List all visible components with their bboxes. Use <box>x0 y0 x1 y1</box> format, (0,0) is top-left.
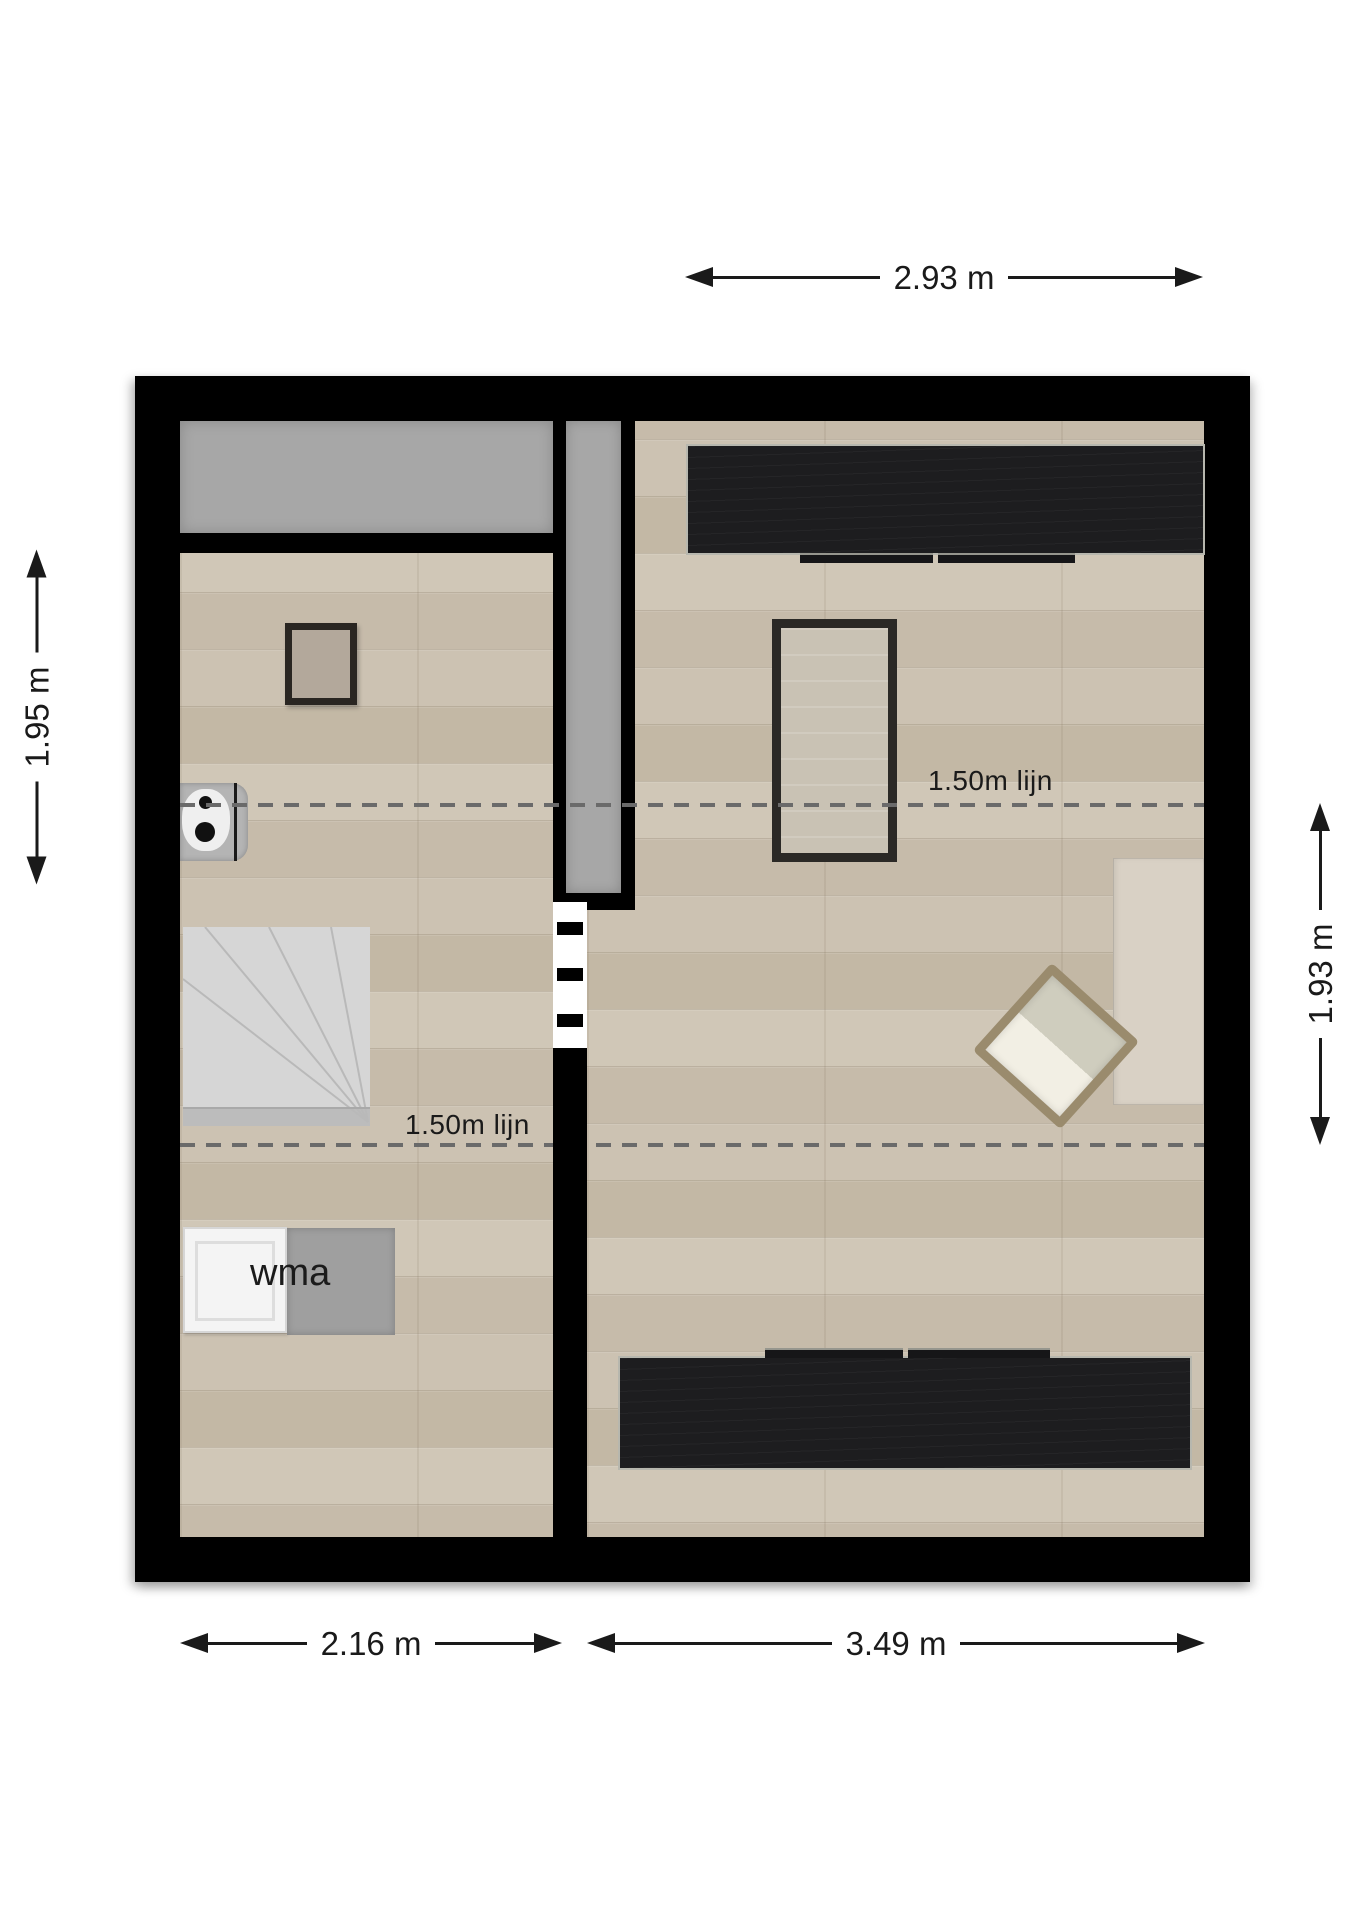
dimension-bottom-left: 2.16 m <box>180 1622 562 1664</box>
dimension-line <box>208 1642 307 1645</box>
toilet <box>180 783 248 861</box>
dimension-line <box>35 577 38 652</box>
dimension-bottom-right-label: 3.49 m <box>846 1627 947 1660</box>
dimension-line <box>1008 276 1175 279</box>
arrow-right-icon <box>534 1633 562 1653</box>
toilet-drain-icon <box>195 822 215 842</box>
dimension-right-label: 1.93 m <box>1304 924 1337 1025</box>
door-opening-dash <box>557 922 583 935</box>
rug <box>772 619 897 862</box>
arrow-left-icon <box>587 1633 615 1653</box>
arrow-right-icon <box>1175 267 1203 287</box>
toilet-edge-line <box>234 783 237 861</box>
wardrobe-top-handle-right <box>938 553 1075 563</box>
bed <box>1113 858 1204 1105</box>
dimension-left: 1.95 m <box>16 550 58 885</box>
picture-frame <box>285 623 357 705</box>
dimension-line <box>960 1642 1177 1645</box>
interior-wall-top-left <box>180 533 553 553</box>
dimension-line <box>35 781 38 856</box>
wardrobe-bottom <box>620 1358 1190 1468</box>
arrow-left-icon <box>180 1633 208 1653</box>
wardrobe-top-handle-left <box>800 553 933 563</box>
arrow-up-icon <box>1310 803 1330 831</box>
door-opening-dash <box>557 968 583 981</box>
door-opening <box>553 902 587 1048</box>
dimension-right: 1.93 m <box>1299 803 1341 1145</box>
dimension-top-label: 2.93 m <box>894 261 995 294</box>
height-line-lower <box>180 1143 1204 1147</box>
arrow-left-icon <box>685 267 713 287</box>
low-headroom-zone <box>180 421 553 533</box>
arrow-down-icon <box>27 857 47 885</box>
dimension-line <box>1319 1038 1322 1117</box>
height-line-label-left: 1.50m lijn <box>405 1110 530 1141</box>
wardrobe-bottom-handle-right <box>908 1348 1050 1358</box>
washing-machine-label: wma <box>250 1252 330 1295</box>
height-line-upper <box>180 803 1204 807</box>
dimension-line <box>615 1642 832 1645</box>
dimension-line <box>713 276 880 279</box>
wardrobe-bottom-handle-left <box>765 1348 903 1358</box>
arrow-right-icon <box>1177 1633 1205 1653</box>
staircase <box>183 927 370 1126</box>
arrow-down-icon <box>1310 1117 1330 1145</box>
floor-plan-page: wma 1.50m lijn 1.50m lijn 2.93 m 2.16 m … <box>0 0 1358 1920</box>
stairwell-void <box>566 421 621 893</box>
height-line-label-right: 1.50m lijn <box>928 766 1053 797</box>
dimension-left-label: 1.95 m <box>20 667 53 768</box>
dimension-line <box>1319 831 1322 910</box>
wardrobe-top <box>688 446 1203 553</box>
arrow-up-icon <box>27 549 47 577</box>
door-opening-dash <box>557 1014 583 1027</box>
dimension-line <box>435 1642 534 1645</box>
dimension-bottom-right: 3.49 m <box>587 1622 1205 1664</box>
dimension-bottom-left-label: 2.16 m <box>321 1627 422 1660</box>
dimension-top: 2.93 m <box>685 256 1203 298</box>
